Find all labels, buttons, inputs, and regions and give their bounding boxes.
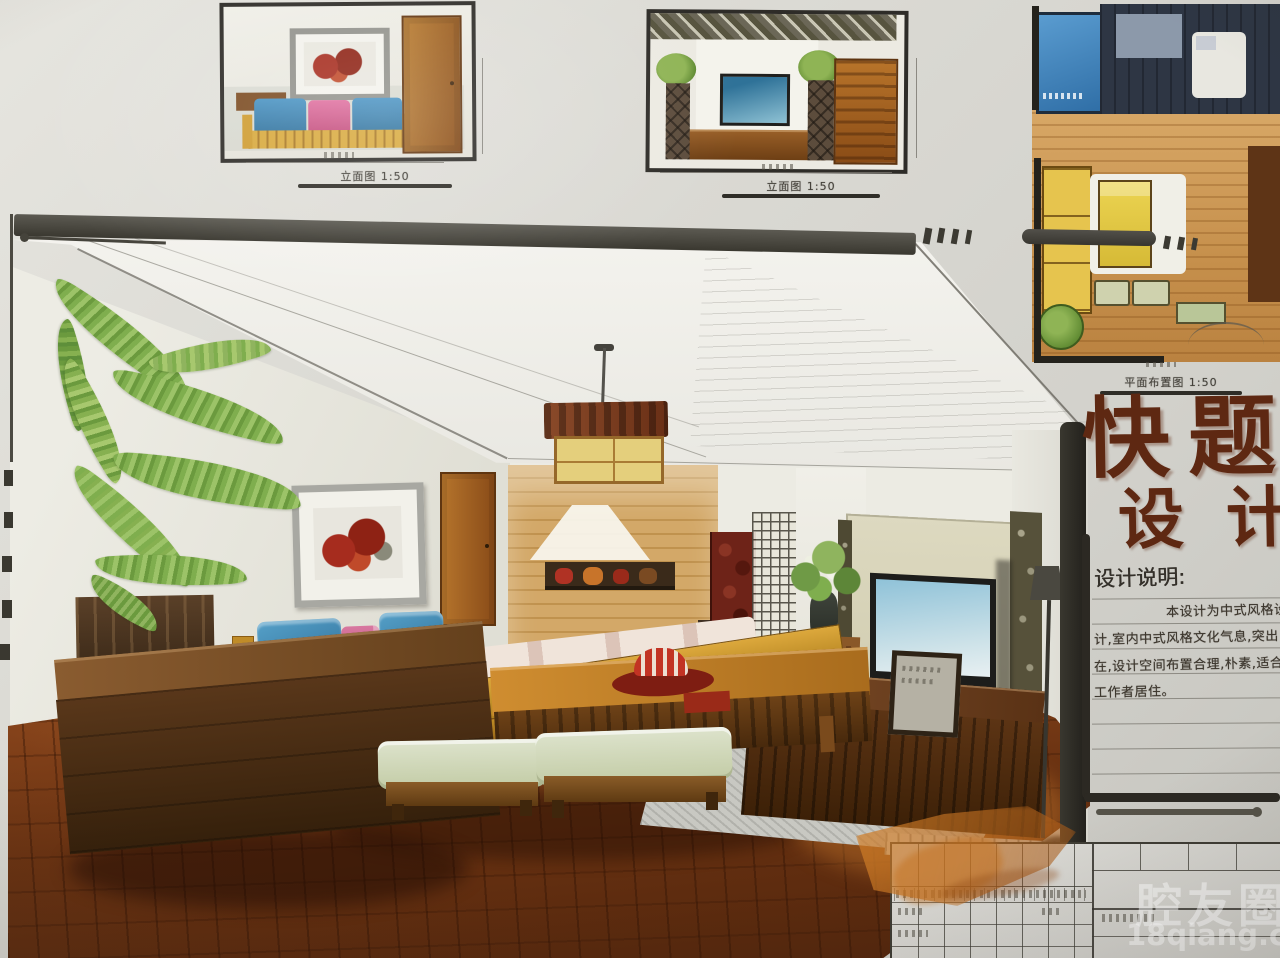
ottoman-base (386, 782, 538, 806)
notes-text-line: 工作者居住。 (1094, 680, 1184, 700)
border-tick (965, 230, 972, 245)
ruled-line (1092, 772, 1280, 774)
door (402, 15, 463, 153)
left-border-dash (4, 512, 13, 528)
niche-ornament (613, 569, 629, 584)
table-vline (1140, 844, 1141, 870)
plan-plant (1038, 304, 1084, 350)
door-handle (450, 81, 454, 85)
table-vline (1188, 844, 1189, 870)
plan-bench (1176, 302, 1226, 324)
border-tick (937, 228, 946, 244)
tv (720, 74, 790, 126)
ruled-line (1092, 747, 1280, 749)
label-underline (722, 194, 880, 198)
table-hline (892, 946, 1092, 947)
plan-wall (1034, 158, 1041, 362)
plant-pedestal (666, 83, 691, 159)
plant-foliage (656, 53, 696, 85)
floor-lamp-shade (1030, 566, 1064, 600)
plant-pedestal (808, 80, 835, 160)
carved-top-band (650, 13, 896, 41)
notes-underline2 (1096, 809, 1258, 815)
ottoman-foot (706, 792, 718, 810)
plan-pillow (1196, 36, 1216, 50)
elevation-center-frame (645, 9, 908, 174)
sofa-base (248, 130, 408, 149)
tv-cabinet (688, 129, 826, 160)
dimension-text-mark (324, 152, 354, 158)
table-vline (1074, 844, 1075, 958)
dimension-line (246, 162, 444, 163)
framed-picture (290, 28, 391, 101)
painting-art (313, 506, 403, 580)
picture-art (304, 42, 376, 87)
dimension-line (660, 172, 892, 173)
left-border-line (10, 214, 13, 462)
notes-text-line: 计,室内中式风格文化气息,突出 (1094, 625, 1280, 647)
notes-text-line: 本设计为中式风格设 (1166, 599, 1280, 619)
dimension-text-mark (1146, 362, 1176, 367)
elevation-left-frame (219, 1, 476, 163)
border-band-short (1022, 229, 1156, 246)
notes-border-bottom (1084, 793, 1280, 802)
main-title-line1: 快题 (1081, 392, 1280, 484)
table-vline-major (1092, 844, 1094, 958)
main-title-line2: 设计 (1117, 484, 1280, 554)
pendant-lamp-top (544, 401, 669, 439)
niche-ornament (583, 567, 603, 585)
border-tick (951, 229, 960, 245)
border-tick (923, 228, 933, 245)
notes-text-line: 在,设计空间布置合理,朴素,适合 (1094, 652, 1280, 674)
table-leg (819, 716, 835, 753)
photo-frame (888, 650, 962, 738)
watermark-site-url: 18qiang.com (1126, 918, 1280, 952)
elevation-center-label: 立面图 1:50 (718, 178, 884, 194)
ottoman-base (544, 776, 726, 802)
niche-ornament (555, 568, 573, 584)
table-tiny-text (898, 930, 928, 937)
photo-frame-lines (902, 678, 936, 685)
plan-dark-room (1100, 4, 1280, 114)
table-tiny-text (898, 908, 924, 915)
plan-wall (1032, 6, 1039, 110)
dimension-line-vertical (482, 58, 483, 154)
pendant-lamp-shade (554, 436, 664, 484)
left-border-dash (2, 600, 12, 618)
display-niche (545, 562, 675, 590)
design-board-photo: 立面图 1:50 立面图 1:50 (0, 0, 1280, 958)
dimension-text-mark (762, 164, 794, 170)
table-vline (1236, 844, 1237, 870)
table-hline (892, 924, 1092, 925)
left-border-dash (2, 556, 12, 572)
corner-rod-dot (20, 233, 29, 242)
plan-blue-room (1036, 12, 1108, 114)
left-border-dash (0, 644, 10, 660)
floor-plan (1030, 0, 1280, 368)
notes-border-vertical (1082, 534, 1090, 798)
bouquet (778, 534, 870, 612)
ottoman-foot (552, 800, 564, 818)
tv-shadow (996, 560, 1012, 701)
ottoman-foot (520, 800, 532, 816)
red-box (684, 691, 731, 713)
mountain-motif (530, 505, 650, 560)
notes-underline-dot (1252, 807, 1262, 817)
plan-bed (1098, 180, 1152, 268)
label-underline (298, 184, 452, 188)
plan-door-arc (1188, 322, 1264, 368)
plan-tiny-text (1043, 93, 1083, 99)
dimension-line-vertical (916, 58, 917, 158)
notes-heading: 设计说明: (1094, 561, 1186, 593)
ottoman-foot (392, 804, 404, 820)
ruled-line (1092, 722, 1280, 724)
photo-frame-lines (902, 666, 940, 673)
door (440, 472, 496, 626)
plan-panel (1116, 14, 1182, 58)
plan-dark-furniture (1248, 146, 1280, 302)
left-border-dash (4, 470, 13, 486)
sofa-arm (242, 115, 252, 149)
door-handle (485, 544, 489, 548)
plan-stool (1132, 280, 1170, 306)
table-tiny-text (1042, 908, 1062, 915)
side-cabinet (833, 58, 898, 164)
plan-wall (1034, 356, 1164, 363)
plan-stool (1094, 280, 1130, 306)
ruled-line (1092, 647, 1280, 649)
niche-ornament (639, 568, 657, 584)
framed-painting (291, 482, 426, 607)
ruled-line (1092, 622, 1280, 624)
elevation-left-label: 立面图 1:50 (296, 168, 454, 184)
